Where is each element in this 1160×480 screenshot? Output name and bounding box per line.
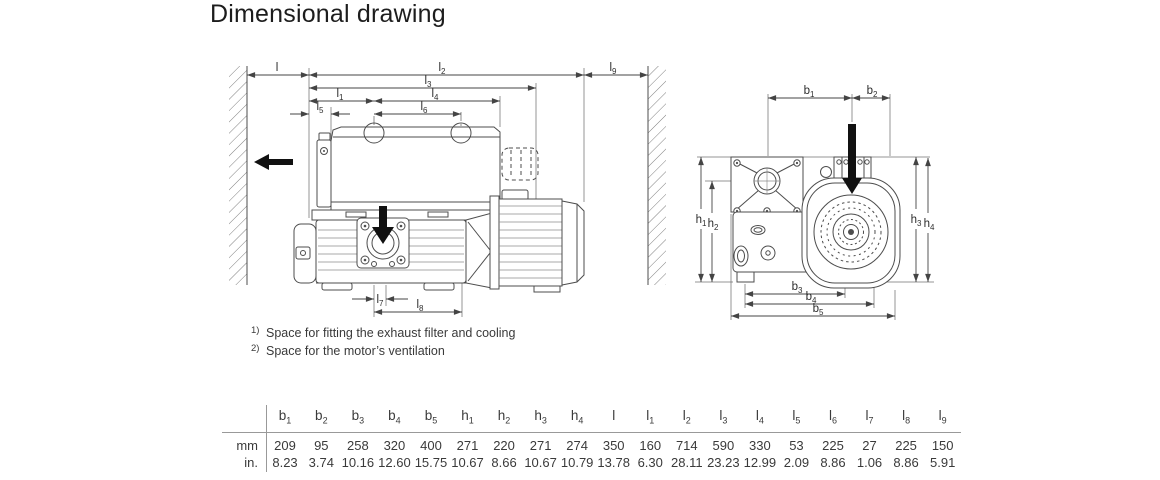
dim-label-b3: b3 <box>792 281 803 295</box>
value-h2-mm: 220 <box>486 432 523 454</box>
front-view-drawing: b1 b2 h1 h2 h3 h4 b3 b4 b5 <box>695 85 935 320</box>
col-header-b3: b3 <box>340 405 377 432</box>
value-l7-in.: 1.06 <box>851 454 888 472</box>
gearbox-front <box>731 157 803 214</box>
col-header-l: l <box>595 405 632 432</box>
unit-column-header <box>222 405 267 432</box>
col-header-l1: l1 <box>632 405 669 432</box>
value-b5-mm: 400 <box>413 432 450 454</box>
value-l5-in.: 2.09 <box>778 454 815 472</box>
dim-label-b2: b2 <box>867 85 878 99</box>
exhaust-direction-arrow <box>254 154 293 170</box>
value-l5-mm: 53 <box>778 432 815 454</box>
value-l-mm: 350 <box>595 432 632 454</box>
value-b3-in.: 10.16 <box>340 454 377 472</box>
dim-label-h4: h4 <box>924 218 935 232</box>
table-row-mm: mm 2099525832040027122027127435016071459… <box>222 432 961 454</box>
dim-label-h1: h1 <box>696 214 707 228</box>
dim-label-b1: b1 <box>804 85 815 99</box>
col-header-b4: b4 <box>376 405 413 432</box>
footnote-1-marker: 1) <box>251 325 266 337</box>
value-l1-mm: 160 <box>632 432 669 454</box>
value-l4-in.: 12.99 <box>742 454 779 472</box>
col-header-l3: l3 <box>705 405 742 432</box>
footnote-2-marker: 2) <box>251 343 266 355</box>
table-row-in: in. 8.233.7410.1612.6015.7510.678.6610.6… <box>222 454 961 472</box>
value-h1-mm: 271 <box>449 432 486 454</box>
value-b2-mm: 95 <box>303 432 340 454</box>
footnote-2-text: Space for the motor’s ventilation <box>266 343 445 359</box>
value-l2-in.: 28.11 <box>669 454 706 472</box>
dim-label-h2: h2 <box>708 218 719 232</box>
value-l3-in.: 23.23 <box>705 454 742 472</box>
value-l8-mm: 225 <box>888 432 925 454</box>
col-header-l9: l9 <box>924 405 961 432</box>
dim-label-b5: b5 <box>813 303 824 317</box>
unit-label-mm: mm <box>222 432 267 454</box>
col-header-h3: h3 <box>522 405 559 432</box>
value-l7-mm: 27 <box>851 432 888 454</box>
col-header-b5: b5 <box>413 405 450 432</box>
value-h4-mm: 274 <box>559 432 596 454</box>
value-l1-in.: 6.30 <box>632 454 669 472</box>
unit-label-in: in. <box>222 454 267 472</box>
dim-label-l: l <box>276 62 279 74</box>
dim-label-l5: l5 <box>316 101 324 115</box>
dim-label-l9: l9 <box>609 62 617 76</box>
dim-label-l4: l4 <box>431 88 439 102</box>
left-wall-hatch <box>229 66 247 285</box>
col-header-l2: l2 <box>669 405 706 432</box>
col-header-l5: l5 <box>778 405 815 432</box>
col-header-b2: b2 <box>303 405 340 432</box>
value-h2-in.: 8.66 <box>486 454 523 472</box>
dim-label-h3: h3 <box>911 214 922 228</box>
col-header-h4: h4 <box>559 405 596 432</box>
dimension-table: b1b2b3b4b5h1h2h3h4ll1l2l3l4l5l6l7l8l9 mm… <box>222 405 961 472</box>
value-h3-mm: 271 <box>522 432 559 454</box>
col-header-h2: h2 <box>486 405 523 432</box>
footnotes: 1) Space for fitting the exhaust filter … <box>251 325 515 361</box>
col-header-h1: h1 <box>449 405 486 432</box>
value-b1-mm: 209 <box>267 432 304 454</box>
dim-label-l7: l7 <box>376 294 384 308</box>
footnote-2: 2) Space for the motor’s ventilation <box>251 343 515 361</box>
col-header-l8: l8 <box>888 405 925 432</box>
exhaust-filter-outline <box>502 148 538 180</box>
value-b1-in.: 8.23 <box>267 454 304 472</box>
value-b4-mm: 320 <box>376 432 413 454</box>
value-l3-mm: 590 <box>705 432 742 454</box>
value-b2-in.: 3.74 <box>303 454 340 472</box>
value-l8-in.: 8.86 <box>888 454 925 472</box>
value-l2-mm: 714 <box>669 432 706 454</box>
value-l6-in.: 8.86 <box>815 454 852 472</box>
value-l9-mm: 150 <box>924 432 961 454</box>
footnote-1: 1) Space for fitting the exhaust filter … <box>251 325 515 343</box>
value-b3-mm: 258 <box>340 432 377 454</box>
col-header-b1: b1 <box>267 405 304 432</box>
col-header-l6: l6 <box>815 405 852 432</box>
table-header-row: b1b2b3b4b5h1h2h3h4ll1l2l3l4l5l6l7l8l9 <box>222 405 961 432</box>
col-header-l7: l7 <box>851 405 888 432</box>
col-header-l4: l4 <box>742 405 779 432</box>
dim-label-l3: l3 <box>424 75 432 89</box>
dim-label-l6: l6 <box>420 101 428 115</box>
dim-label-l1: l1 <box>336 88 344 102</box>
value-b4-in.: 12.60 <box>376 454 413 472</box>
value-h4-in.: 10.79 <box>559 454 596 472</box>
side-view-drawing: l l2 l9 l3 l1 l4 l5 l6 l7 l8 <box>229 62 666 317</box>
value-l-in.: 13.78 <box>595 454 632 472</box>
value-b5-in.: 15.75 <box>413 454 450 472</box>
dim-label-l2: l2 <box>438 62 446 76</box>
footnote-1-text: Space for fitting the exhaust filter and… <box>266 325 515 341</box>
page: Dimensional drawing <box>0 0 1160 480</box>
oil-separator-box <box>317 123 500 210</box>
value-h3-in.: 10.67 <box>522 454 559 472</box>
value-l4-mm: 330 <box>742 432 779 454</box>
value-l9-in.: 5.91 <box>924 454 961 472</box>
value-h1-in.: 10.67 <box>449 454 486 472</box>
dim-label-l8: l8 <box>416 299 424 313</box>
value-l6-mm: 225 <box>815 432 852 454</box>
right-wall-hatch <box>648 66 666 285</box>
